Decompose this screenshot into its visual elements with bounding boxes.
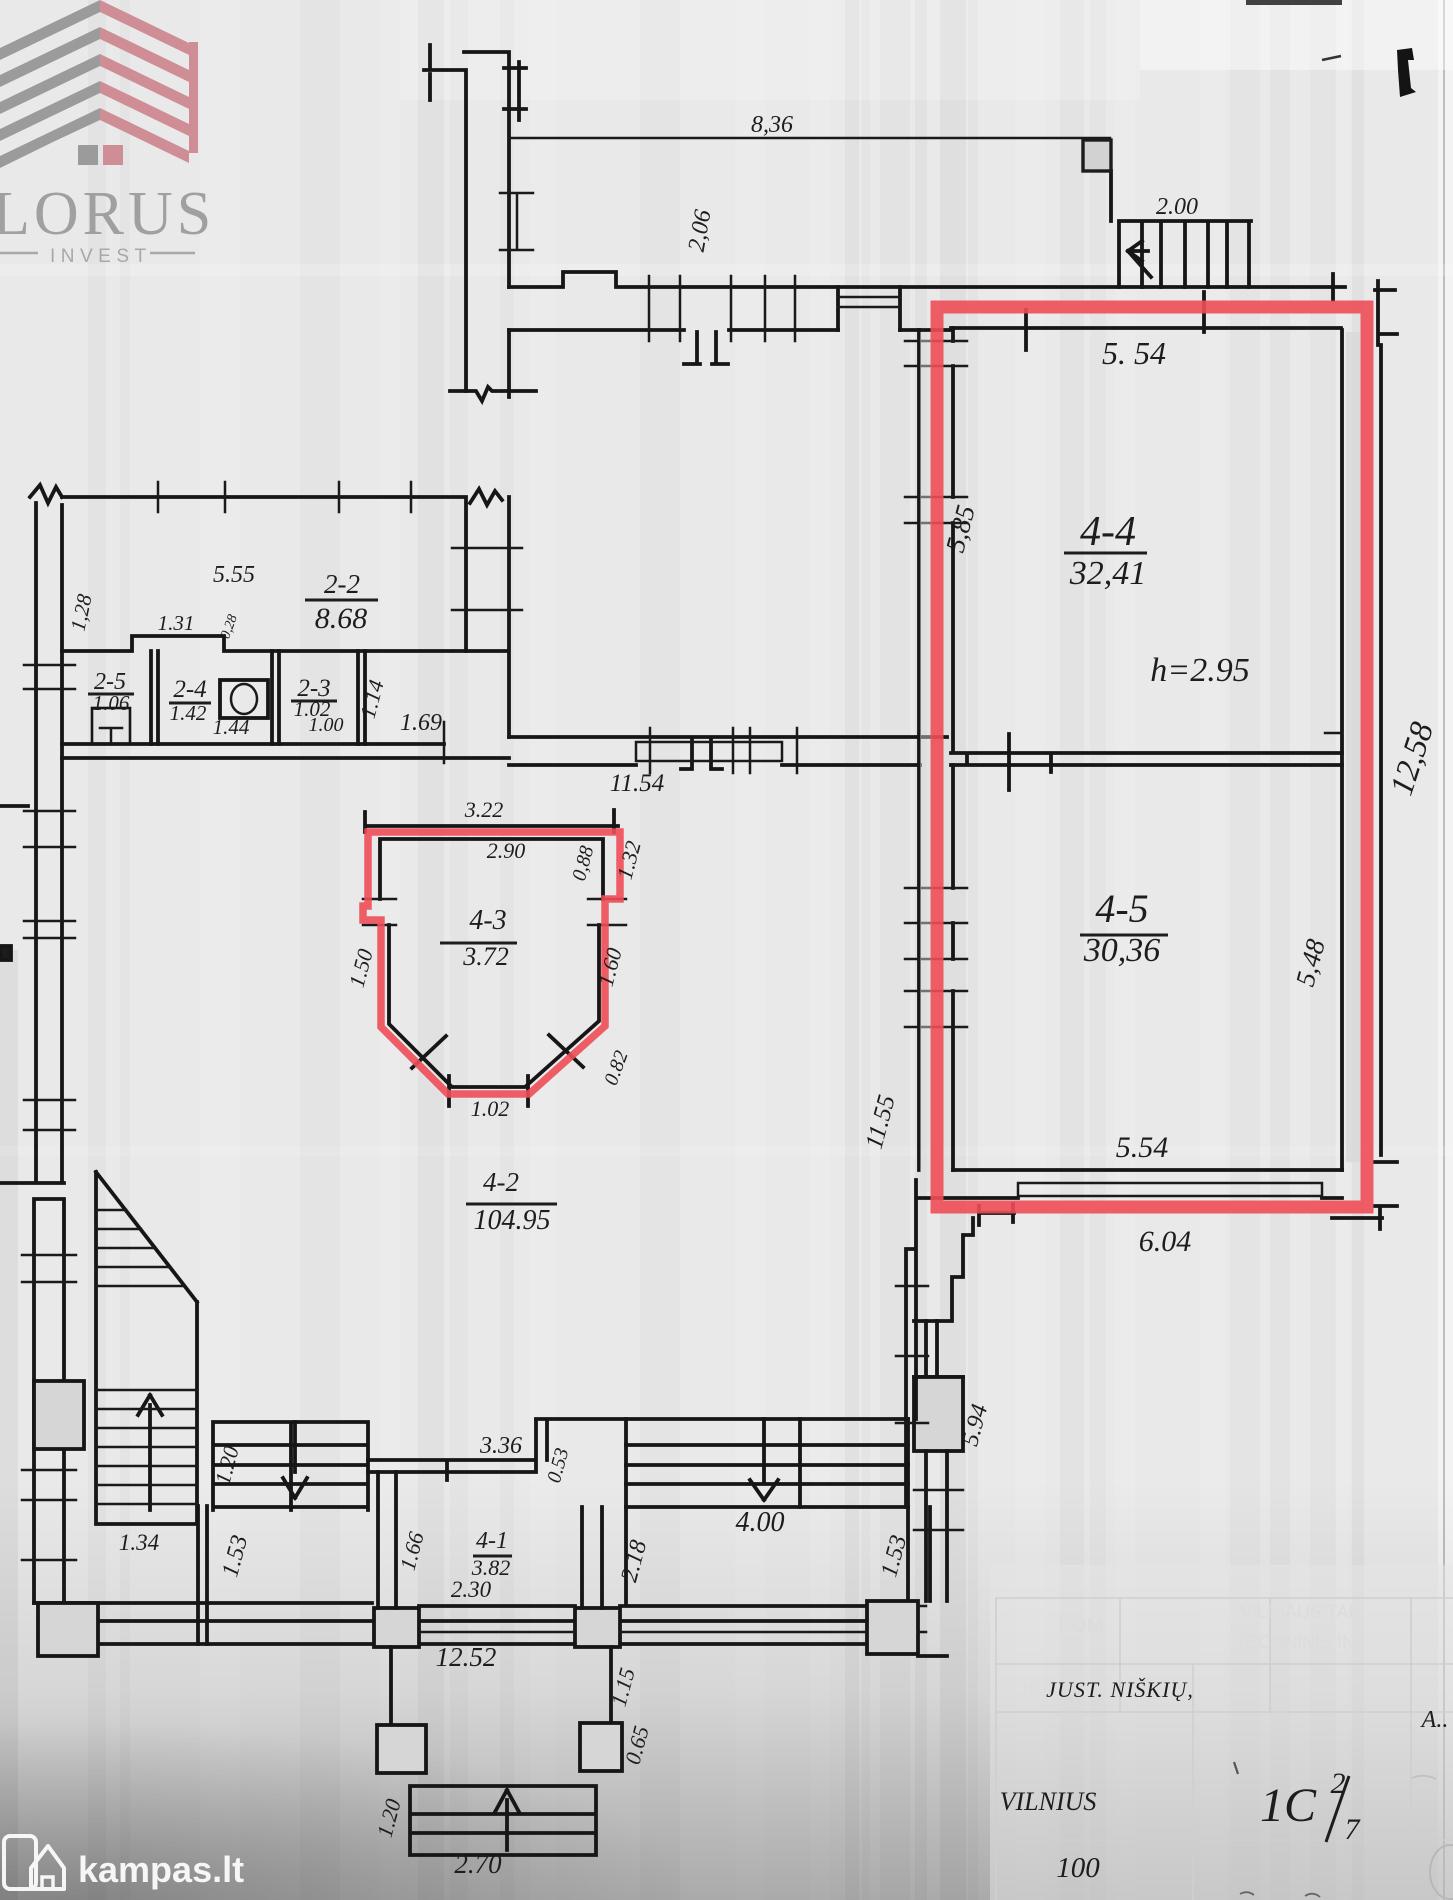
svg-text:2-2: 2-2 bbox=[324, 569, 360, 599]
svg-text:8,36: 8,36 bbox=[751, 112, 793, 138]
svg-text:6.04: 6.04 bbox=[1139, 1225, 1192, 1258]
svg-text:TECHNINIS IN: TECHNINIS IN bbox=[1235, 1632, 1355, 1652]
svg-text:12.52: 12.52 bbox=[436, 1642, 497, 1672]
svg-text:104.95: 104.95 bbox=[474, 1205, 551, 1236]
svg-text:3.36: 3.36 bbox=[479, 1433, 522, 1459]
svg-text:1.31: 1.31 bbox=[158, 611, 195, 635]
svg-text:VILNIUS: VILNIUS bbox=[1000, 1787, 1097, 1816]
svg-text:100: 100 bbox=[1056, 1852, 1100, 1884]
svg-text:3.72: 3.72 bbox=[462, 942, 509, 971]
svg-text:A..: A.. bbox=[1420, 1707, 1449, 1733]
svg-text:2.90: 2.90 bbox=[487, 838, 526, 863]
svg-text:1.69: 1.69 bbox=[400, 710, 442, 736]
svg-text:5.54: 5.54 bbox=[1116, 1131, 1169, 1164]
svg-text:4-1: 4-1 bbox=[476, 1528, 508, 1554]
svg-text:2.00: 2.00 bbox=[1156, 194, 1198, 220]
svg-text:8.68: 8.68 bbox=[315, 602, 368, 635]
svg-text:5.55: 5.55 bbox=[213, 562, 255, 588]
svg-text:4-2: 4-2 bbox=[483, 1167, 519, 1197]
svg-text:KOM: KOM bbox=[1058, 1615, 1104, 1637]
svg-text:1.34: 1.34 bbox=[119, 1530, 159, 1555]
svg-text:1C: 1C bbox=[1260, 1779, 1317, 1832]
svg-text:32,41: 32,41 bbox=[1069, 555, 1147, 592]
svg-text:3.22: 3.22 bbox=[464, 797, 504, 822]
svg-text:1.02: 1.02 bbox=[471, 1096, 510, 1121]
svg-text:30,36: 30,36 bbox=[1083, 932, 1161, 969]
svg-text:1.42: 1.42 bbox=[170, 701, 207, 725]
svg-text:INVEST: INVEST bbox=[50, 246, 152, 267]
svg-text:2-4: 2-4 bbox=[173, 676, 206, 703]
svg-text:2.30: 2.30 bbox=[451, 1577, 492, 1602]
svg-text:kampas.lt: kampas.lt bbox=[78, 1849, 244, 1890]
svg-text:h=2.95: h=2.95 bbox=[1150, 652, 1249, 689]
svg-text:4-3: 4-3 bbox=[469, 905, 506, 936]
svg-text:11.54: 11.54 bbox=[610, 770, 664, 797]
svg-text:1.44: 1.44 bbox=[213, 715, 250, 739]
svg-text:4-4: 4-4 bbox=[1080, 509, 1136, 555]
svg-text:5. 54: 5. 54 bbox=[1102, 335, 1166, 371]
svg-text:7: 7 bbox=[1345, 1813, 1362, 1846]
svg-text:1.00: 1.00 bbox=[309, 714, 344, 736]
svg-text:VILNIAUS TAR: VILNIAUS TAR bbox=[1240, 1602, 1361, 1622]
svg-text:LORUS: LORUS bbox=[0, 180, 215, 248]
svg-text:JUST. NIŠKIŲ,: JUST. NIŠKIŲ, bbox=[1046, 1677, 1194, 1702]
svg-text:4.00: 4.00 bbox=[736, 1507, 785, 1538]
svg-text:4-5: 4-5 bbox=[1095, 886, 1148, 931]
svg-text:2.70: 2.70 bbox=[454, 1849, 502, 1879]
